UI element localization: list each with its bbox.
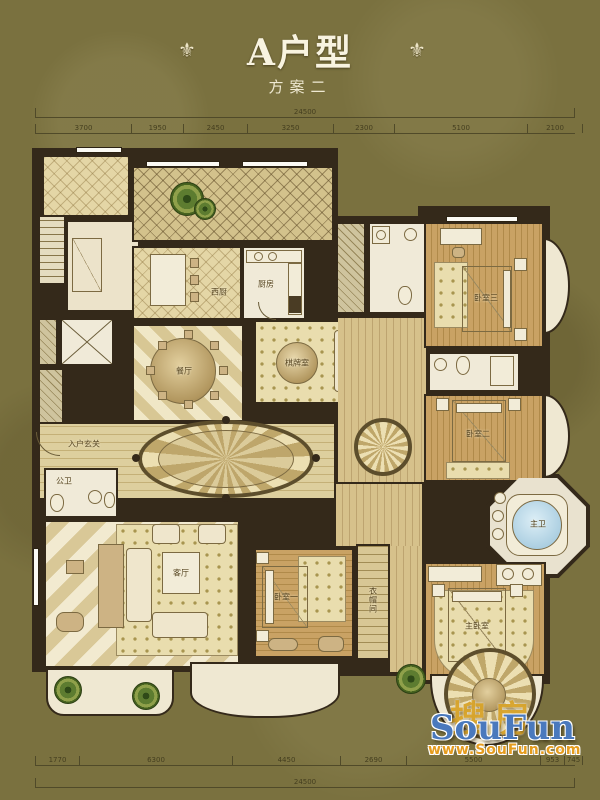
nightstand xyxy=(256,630,269,642)
chair xyxy=(184,330,193,339)
chair xyxy=(452,247,465,258)
sink-icon xyxy=(268,252,277,261)
nightstand xyxy=(508,398,521,411)
bed xyxy=(72,238,102,292)
room-label: 主卫 xyxy=(530,519,546,530)
dimension-top-segments: 3700 1950 2450 3250 2300 5100 2100 xyxy=(35,124,575,134)
dimension-bottom-total: 24500 xyxy=(35,778,575,788)
toilet-icon xyxy=(492,510,504,522)
window xyxy=(146,161,220,167)
corridor xyxy=(390,546,422,672)
room-label: 卧室三 xyxy=(474,293,498,304)
sink-icon xyxy=(522,568,534,580)
room-label: 公卫 xyxy=(56,476,72,487)
stud xyxy=(132,454,140,462)
plant-icon xyxy=(396,664,426,694)
island-counter xyxy=(150,254,186,306)
window xyxy=(446,216,518,222)
hall-ellipse-inner xyxy=(158,430,294,488)
elevator-x-icon xyxy=(62,320,112,364)
dim-value: 3250 xyxy=(248,124,334,133)
shower xyxy=(490,356,514,386)
dim-value: 3700 xyxy=(35,124,132,133)
sofa xyxy=(152,612,208,638)
bay-window xyxy=(544,238,570,334)
stool xyxy=(190,258,199,268)
dim-value: 1770 xyxy=(35,756,80,765)
room-label: 衣帽间 xyxy=(368,587,379,614)
room-label: 厨房 xyxy=(258,279,274,290)
staircase xyxy=(38,215,66,285)
stool xyxy=(190,292,199,302)
room-label: 西厨 xyxy=(211,287,227,298)
entry-garden xyxy=(132,166,334,242)
room-label: 客厅 xyxy=(173,568,189,579)
dim-value: 4450 xyxy=(233,756,341,765)
corridor-medallion xyxy=(354,418,412,476)
elevator xyxy=(60,318,114,366)
corridor xyxy=(336,484,422,546)
sink-icon xyxy=(254,252,263,261)
chair xyxy=(146,366,155,375)
chair xyxy=(210,391,219,400)
armchair xyxy=(152,524,180,544)
nightstand xyxy=(436,398,449,411)
sink-icon xyxy=(88,490,102,504)
floorplan-page: A户型 方案二 ⚜ ⚜ 24500 3700 1950 2450 3250 23… xyxy=(0,0,600,800)
armchair xyxy=(198,524,226,544)
shaft xyxy=(38,318,58,366)
nightstand xyxy=(514,258,527,271)
storage xyxy=(336,222,366,314)
dim-value: 2690 xyxy=(341,756,407,765)
dim-value: 5100 xyxy=(395,124,528,133)
toilet-icon xyxy=(502,568,514,580)
pillows xyxy=(456,403,502,413)
bench xyxy=(268,638,298,651)
room-label: 卧室二 xyxy=(466,429,490,440)
chair xyxy=(219,366,228,375)
toilet-icon xyxy=(456,356,470,375)
window xyxy=(242,161,308,167)
page-subtitle: 方案二 xyxy=(0,76,600,97)
dim-value: 1950 xyxy=(132,124,184,133)
chair xyxy=(184,400,193,409)
console-table xyxy=(98,544,124,628)
ornament-icon: ⚜ xyxy=(408,38,426,62)
desk xyxy=(440,228,482,245)
dim-value: 2100 xyxy=(528,124,583,133)
bidet-icon xyxy=(492,528,504,540)
stove-icon xyxy=(289,296,301,313)
pillows xyxy=(503,270,511,328)
washer-drum-icon xyxy=(376,230,386,240)
pillows xyxy=(265,570,274,624)
sink-icon xyxy=(404,228,417,241)
chair xyxy=(158,391,167,400)
pillows xyxy=(452,591,502,602)
ornament-icon: ⚜ xyxy=(178,38,196,62)
stud xyxy=(222,416,230,424)
chair xyxy=(210,341,219,350)
sofa xyxy=(126,548,152,622)
ac-ledge xyxy=(76,147,122,153)
duct xyxy=(38,368,64,424)
room-label: 主卧室 xyxy=(465,621,489,632)
bench xyxy=(56,612,84,632)
rug xyxy=(446,462,510,479)
sink-icon xyxy=(434,358,447,371)
room-label: 卧室一 xyxy=(274,592,298,603)
plant-icon xyxy=(54,676,82,704)
toilet-icon xyxy=(398,286,412,305)
page-title: A户型 xyxy=(0,24,600,76)
room-label: 餐厅 xyxy=(176,366,192,377)
west-kitchen xyxy=(132,246,242,320)
nightstand xyxy=(432,584,445,597)
balcony-bottom-center xyxy=(190,662,340,718)
dimension-top-total: 24500 xyxy=(35,108,575,118)
nightstand xyxy=(510,584,523,597)
stud xyxy=(312,454,320,462)
plant-icon xyxy=(132,682,160,710)
plant-icon xyxy=(194,198,216,220)
cabinet xyxy=(318,636,344,652)
balcony-top-left xyxy=(42,155,130,217)
sink-icon xyxy=(494,492,506,504)
bay-window xyxy=(544,394,570,478)
stool xyxy=(66,560,84,574)
stud xyxy=(222,494,230,502)
nightstand xyxy=(514,328,527,341)
dim-value: 6300 xyxy=(80,756,233,765)
nightstand xyxy=(256,552,269,564)
window xyxy=(33,548,39,606)
cabinet xyxy=(428,566,482,582)
stool xyxy=(190,275,199,285)
room-label: 棋牌室 xyxy=(285,358,309,369)
watermark-url: www.SouFun.com xyxy=(428,742,582,758)
chair xyxy=(158,341,167,350)
dim-value: 2450 xyxy=(184,124,248,133)
toilet-icon xyxy=(50,494,64,512)
dim-value: 2300 xyxy=(334,124,395,133)
room-label: 入户玄关 xyxy=(68,439,100,450)
bidet-icon xyxy=(104,492,115,508)
